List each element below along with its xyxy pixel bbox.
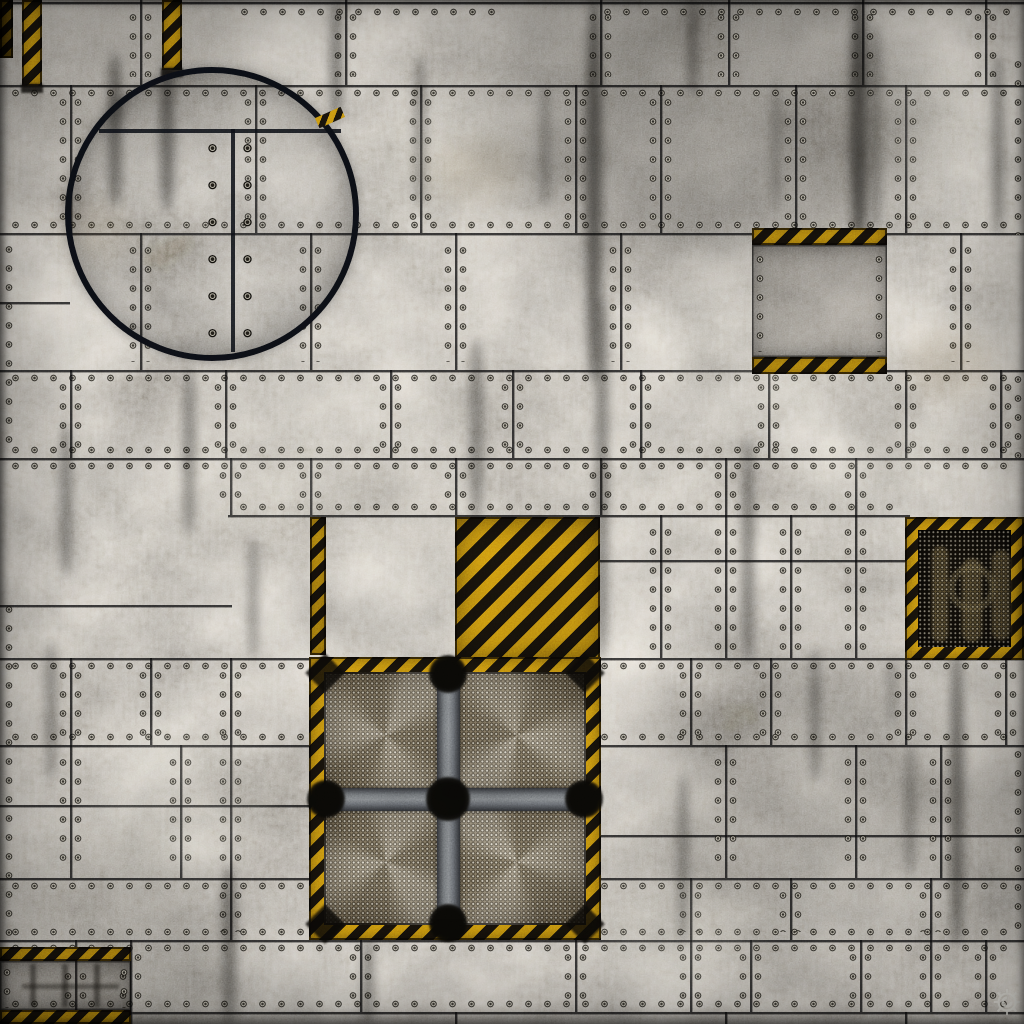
rivet-column	[974, 948, 982, 1004]
hatch-rivet	[208, 255, 217, 264]
rivet-column	[844, 523, 852, 650]
rivet-column	[994, 666, 1002, 737]
wear-highlight	[600, 880, 760, 980]
grime-streak	[183, 368, 195, 533]
plate-seam-vertical	[930, 878, 933, 940]
rivet-column	[129, 8, 137, 77]
plate-seam-vertical	[455, 233, 458, 370]
rivet-column	[564, 93, 572, 225]
rivet-column	[664, 93, 672, 225]
grate-line	[22, 984, 119, 989]
rivet-column	[74, 666, 82, 737]
plate-seam-vertical	[770, 658, 773, 745]
rivet-column	[1014, 370, 1022, 458]
rivet-column	[844, 753, 852, 870]
rivet-column	[919, 948, 927, 1004]
rivet-column	[649, 523, 657, 650]
hatch-rivet	[243, 329, 252, 338]
rivet-column	[859, 753, 867, 870]
rivet-column	[875, 250, 883, 352]
rivet-column	[919, 886, 927, 932]
rivet-column	[139, 666, 147, 737]
fan-blade-sheen	[324, 799, 448, 925]
rivet-column	[459, 466, 467, 507]
hatch-rivet	[208, 144, 217, 153]
grime-streak	[0, 1014, 1024, 1024]
hazard-wedge	[315, 107, 345, 128]
rivet-column	[759, 666, 767, 737]
plate-seam-vertical	[795, 85, 798, 233]
rivet-column	[649, 93, 657, 225]
vent-fan-assembly	[309, 657, 601, 940]
plate-seam-vertical	[575, 940, 578, 1012]
grime-streak	[888, 658, 896, 728]
plate-seam-vertical	[855, 515, 858, 658]
hatch-rivet	[243, 255, 252, 264]
grime-streak	[950, 655, 964, 945]
wear-highlight	[810, 420, 950, 500]
rivet-column	[859, 523, 867, 650]
rivet-column	[3, 963, 11, 1008]
plate-seam-vertical	[790, 878, 793, 940]
scene-layer	[0, 0, 1024, 1024]
rivet-column	[629, 378, 637, 450]
rivet-column	[564, 948, 572, 1004]
plate-seam-vertical	[725, 458, 728, 515]
rivet-column	[864, 948, 872, 1004]
rivet-column	[794, 886, 802, 932]
gear-logo-icon	[991, 985, 1023, 1019]
rivet-column	[729, 523, 737, 650]
rivet-column	[5, 600, 13, 938]
rivet-column	[1004, 378, 1012, 450]
plate-seam-vertical	[70, 745, 73, 878]
rivet-column	[644, 378, 652, 450]
hazard-band-top	[0, 947, 131, 961]
rivet-column	[732, 8, 740, 77]
rivet-column	[929, 753, 937, 870]
hatch-ring	[65, 67, 359, 361]
rivet-column	[1014, 745, 1022, 935]
plate-seam-vertical	[230, 658, 233, 745]
rivet-column	[779, 886, 787, 932]
rivet-column	[379, 378, 387, 450]
hazard-band-bottom	[752, 357, 887, 374]
plate-seam-vertical	[940, 745, 943, 878]
plate-seam-vertical	[575, 85, 578, 233]
rivet-column	[909, 666, 917, 737]
plate-seam-vertical	[790, 515, 793, 658]
rivet-column	[679, 666, 687, 737]
plate-seam-horizontal	[0, 605, 232, 608]
battle-mat-canvas	[0, 0, 1024, 1024]
rivet-column	[579, 948, 587, 1004]
grime-streak	[742, 438, 754, 663]
rivet-column	[729, 753, 737, 870]
grime-streak	[540, 85, 550, 205]
grime-streak	[810, 650, 820, 780]
grime-streak	[45, 645, 57, 775]
hazard-band-top	[752, 228, 887, 245]
rivet-column	[59, 753, 67, 870]
rivet-column	[754, 948, 762, 1004]
hazard-square-plate	[455, 517, 600, 659]
grime-streak	[248, 540, 258, 658]
plate-seam-vertical	[725, 745, 728, 878]
vent-dot-grill	[918, 530, 1011, 647]
hatch-rivet	[243, 292, 252, 301]
grime-streak	[222, 868, 236, 1024]
plate-seam-vertical	[620, 233, 623, 370]
rivet-column	[799, 93, 807, 225]
rivet-column	[717, 8, 725, 77]
rivet-column	[5, 240, 13, 455]
hatch-rivet	[208, 292, 217, 301]
plate-seam-vertical	[985, 940, 988, 1012]
rivet-column	[609, 241, 617, 362]
rust-patch	[430, 140, 520, 200]
hazard-edge-strip	[310, 517, 326, 655]
fan-blade-sheen	[448, 799, 586, 925]
rivet-column	[1009, 666, 1017, 737]
rivet-column	[794, 523, 802, 650]
rivet-column	[516, 378, 524, 450]
hazard-strip-a-end-cap	[21, 84, 43, 93]
plate-seam-vertical	[455, 458, 458, 515]
rivet-row	[235, 8, 505, 16]
bottom-left-hazard-plate	[0, 947, 131, 1024]
rivet-column	[144, 8, 152, 77]
plate-seam-vertical	[725, 515, 728, 658]
grime-streak	[993, 55, 1003, 235]
hazard-banded-plate	[752, 228, 887, 374]
hatch-rivet	[243, 181, 252, 190]
rivet-column	[444, 466, 452, 507]
wear-highlight	[90, 730, 270, 870]
rivet-column	[714, 523, 722, 650]
rivet-column	[756, 250, 764, 352]
hazard-corner-piece	[0, 0, 13, 58]
hatch-rivet	[243, 144, 252, 153]
rivet-row	[598, 8, 1018, 16]
grime-streak	[330, 0, 342, 120]
plate-seam-horizontal	[0, 2, 1024, 5]
rivet-column	[989, 378, 997, 450]
rivet-column	[74, 753, 82, 870]
clamp-blob	[307, 780, 345, 818]
plate-seam-vertical	[860, 940, 863, 1012]
grime-streak	[362, 938, 374, 1024]
rivet-column	[120, 963, 128, 1008]
rivet-column	[234, 666, 242, 737]
rivet-column	[604, 8, 612, 77]
rivet-column	[624, 241, 632, 362]
rivet-column	[714, 466, 722, 507]
rivet-column	[349, 8, 357, 77]
plate-seam-vertical	[1005, 658, 1008, 745]
grime-streak	[688, 0, 698, 95]
hatch-seam-line	[231, 129, 235, 352]
plate-seam-vertical	[930, 940, 933, 1012]
grime-streak	[470, 340, 483, 520]
plate-seam-vertical	[905, 658, 908, 745]
hatch-rivet	[208, 218, 217, 227]
rivet-column	[664, 523, 672, 650]
rivet-column	[774, 666, 782, 737]
plate-seam-vertical	[512, 370, 515, 458]
plate-interior	[752, 245, 887, 357]
rivet-column	[219, 666, 227, 737]
plate-seam-vertical	[660, 85, 663, 233]
clamp-blob	[565, 780, 603, 818]
hazard-band-bottom	[0, 1010, 131, 1024]
rivet-column	[59, 666, 67, 737]
hazard-strip-a	[22, 0, 42, 86]
plate-seam-horizontal	[0, 940, 1024, 943]
rivet-column	[934, 886, 942, 932]
rivet-column	[74, 378, 82, 450]
plate-seam-vertical	[855, 745, 858, 878]
fan-blade-sheen	[324, 672, 448, 799]
rivet-column	[1014, 55, 1022, 235]
plate-seam-vertical	[660, 515, 663, 658]
grime-streak	[772, 82, 780, 212]
rivet-column	[729, 466, 737, 507]
rivet-column	[784, 93, 792, 225]
wear-highlight	[860, 60, 980, 180]
plate-seam-vertical	[390, 370, 393, 458]
gear-spiral	[1001, 996, 1012, 1007]
clamp-blob	[429, 904, 467, 942]
plate-seam-vertical	[140, 0, 143, 85]
gear-ring	[999, 994, 1016, 1011]
plate-seam-vertical	[70, 658, 73, 745]
plate-seam-vertical	[640, 370, 643, 458]
plate-seam-vertical	[690, 658, 693, 745]
rivet-column	[934, 948, 942, 1004]
rivet-column	[154, 666, 162, 737]
rust-patch	[905, 330, 995, 400]
grime-streak	[905, 745, 915, 875]
grime-streak	[60, 425, 72, 575]
hazard-strip-b	[162, 0, 182, 70]
hatch-rivet	[208, 329, 217, 338]
rivet-column	[444, 241, 452, 362]
rivet-column	[214, 378, 222, 450]
hatch-rivet	[208, 181, 217, 190]
clamp-blob	[429, 655, 467, 693]
rivet-column	[134, 948, 142, 1004]
clamp-blob	[426, 777, 470, 821]
hatch-rivet	[243, 218, 252, 227]
rivet-column	[501, 378, 509, 450]
vent-interior	[918, 530, 1011, 647]
plate-seam-vertical	[150, 658, 153, 745]
rivet-column	[459, 241, 467, 362]
rivet-column	[714, 753, 722, 870]
plate-seam-vertical	[1000, 370, 1003, 458]
dark-machinery-vent	[905, 517, 1024, 660]
wear-highlight	[200, 430, 360, 530]
hatch-chord-line	[99, 129, 341, 133]
rivet-column	[694, 666, 702, 737]
rivet-column	[974, 8, 982, 77]
rivet-column	[779, 523, 787, 650]
rivet-column	[349, 948, 357, 1004]
rivet-column	[394, 378, 402, 450]
fan-blade-sheen	[448, 672, 586, 799]
rivet-column	[849, 948, 857, 1004]
